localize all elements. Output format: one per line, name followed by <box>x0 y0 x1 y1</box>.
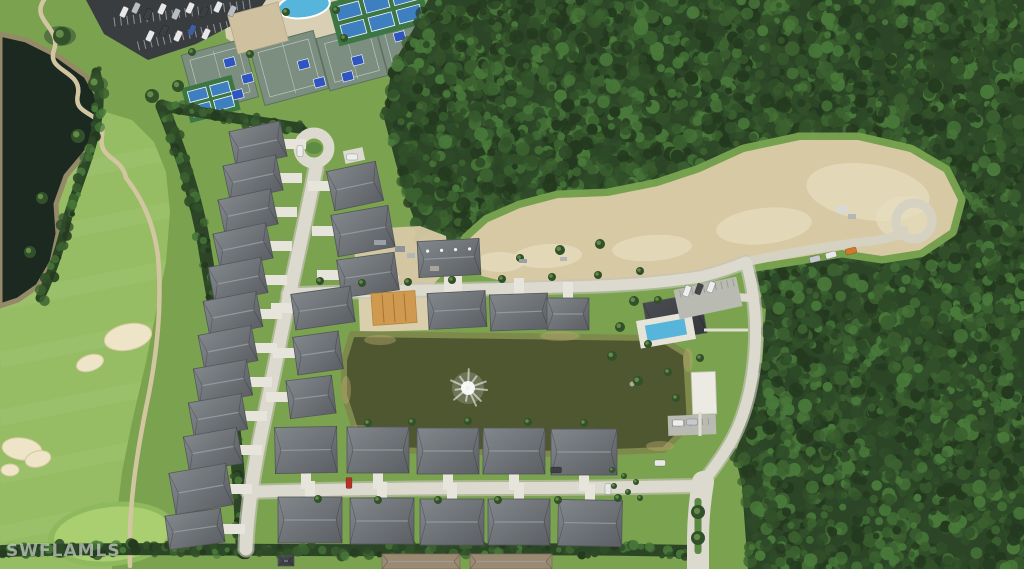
residential-building <box>291 286 355 330</box>
driveway <box>228 484 252 494</box>
residential-building <box>275 426 338 473</box>
sand-bunker <box>1 464 19 476</box>
residential-building <box>165 508 225 549</box>
aerial-photo-canvas <box>0 0 1024 569</box>
driveway <box>585 484 595 502</box>
residential-building <box>420 499 484 545</box>
residential-building <box>470 554 552 569</box>
residential-building <box>382 554 460 569</box>
residential-building <box>347 427 409 473</box>
residential-building <box>278 497 342 543</box>
material-stack <box>374 240 386 245</box>
driveway <box>312 226 336 236</box>
aerial-photo: SWFLAMLS <box>0 0 1024 569</box>
vehicle <box>551 467 562 473</box>
material-stack <box>836 206 848 213</box>
material-stack <box>395 246 405 252</box>
driveway <box>563 282 573 300</box>
material-stack <box>560 257 567 261</box>
vehicle <box>346 478 352 489</box>
driveway <box>514 278 524 296</box>
residential-building <box>427 291 487 330</box>
driveway <box>266 392 290 402</box>
mls-watermark: SWFLAMLS <box>6 541 121 561</box>
material-stack <box>407 253 415 258</box>
driveway <box>273 348 297 358</box>
vehicle <box>297 146 303 157</box>
cul-de-sac-island <box>306 142 322 154</box>
material-stack <box>430 266 439 271</box>
driveway <box>514 483 524 501</box>
driveway <box>447 483 457 501</box>
residential-building <box>488 499 550 545</box>
white-roof-building <box>691 372 716 415</box>
vehicle <box>347 154 358 160</box>
residential-building <box>483 428 545 474</box>
residential-building <box>417 428 479 474</box>
residential-building <box>293 331 344 375</box>
building-under-construction <box>417 238 481 277</box>
vehicle <box>673 420 684 426</box>
residential-building <box>489 293 548 331</box>
residential-building <box>547 298 589 330</box>
driveway <box>305 481 315 499</box>
material-stack <box>848 214 856 219</box>
driveway <box>271 303 295 313</box>
driveway <box>238 445 262 455</box>
driveway <box>248 377 272 387</box>
house-under-construction <box>371 291 417 326</box>
residential-building <box>278 556 294 566</box>
bottom-street <box>248 486 700 492</box>
residential-building <box>558 499 623 546</box>
driveway <box>243 411 267 421</box>
residential-building <box>350 498 414 544</box>
driveway <box>221 524 245 534</box>
driveway <box>263 275 287 285</box>
vehicle <box>687 419 698 425</box>
material-stack <box>519 259 527 263</box>
vehicle <box>605 484 611 495</box>
vehicle <box>655 460 666 466</box>
residential-building <box>286 375 336 418</box>
